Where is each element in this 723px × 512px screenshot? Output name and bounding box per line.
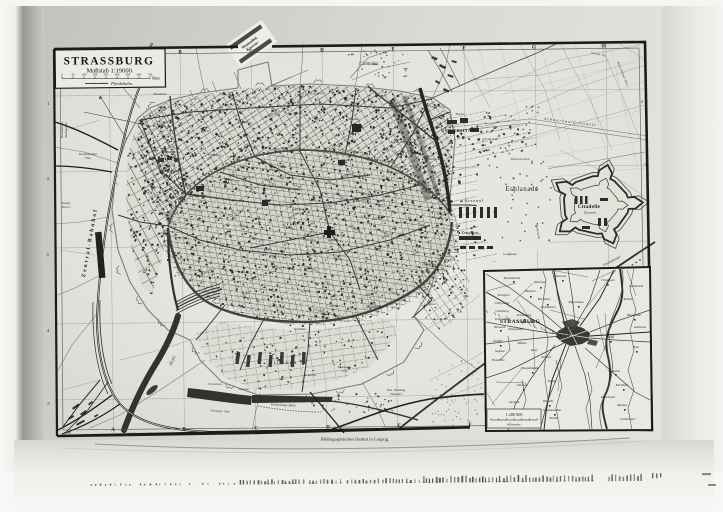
svg-text:Hönheim: Hönheim	[524, 289, 537, 293]
svg-text:Beckerg.: Beckerg.	[262, 106, 271, 109]
svg-text:Pfalzg.: Pfalzg.	[323, 203, 333, 208]
svg-text:Auenheim: Auenheim	[633, 325, 647, 329]
svg-text:Bischheim: Bischheim	[538, 297, 551, 301]
svg-text:Chorin Stift: Chorin Stift	[482, 137, 497, 141]
svg-text:Esplanade: Esplanade	[505, 186, 538, 193]
svg-text:Thor: Thor	[85, 156, 92, 160]
svg-text:Citadelle: Citadelle	[578, 204, 601, 210]
svg-text:C: C	[249, 50, 253, 55]
svg-text:Ostwald: Ostwald	[517, 383, 528, 387]
svg-text:Eckbolsheim: Eckbolsheim	[494, 318, 509, 321]
svg-text:Nikolausg.: Nikolausg.	[303, 237, 317, 241]
svg-text:Leughaus: Leughaus	[503, 252, 517, 256]
svg-text:Kaiser Wilh.-Str.: Kaiser Wilh.-Str.	[391, 140, 414, 144]
svg-text:Reichstett: Reichstett	[533, 280, 546, 284]
svg-text:Arsenal: Arsenal	[464, 198, 483, 203]
svg-text:2: 2	[641, 99, 643, 104]
svg-text:v.d.Tann: v.d.Tann	[509, 400, 520, 404]
svg-text:Pferdebahn.: Pferdebahn.	[110, 81, 133, 86]
svg-text:Werder: Werder	[549, 416, 559, 420]
svg-text:Buchsweiler: Buchsweiler	[64, 123, 68, 138]
svg-text:Wörterhaus: Wörterhaus	[208, 382, 223, 386]
svg-text:Neudorf: Neudorf	[540, 355, 552, 359]
svg-text:Metzgerthor: Metzgerthor	[366, 305, 385, 309]
svg-text:1:200 000: 1:200 000	[506, 412, 523, 417]
svg-text:Grüneberg: Grüneberg	[495, 309, 509, 313]
svg-text:Kaserne: Kaserne	[239, 387, 249, 391]
svg-text:Bibliographisches Institut in: Bibliographisches Institut in Leipzig.	[321, 437, 389, 442]
svg-text:Inst.: Inst.	[342, 369, 348, 373]
svg-text:1: 1	[47, 101, 49, 106]
svg-text:600: 600	[137, 73, 142, 77]
svg-text:G: G	[532, 46, 536, 51]
svg-text:50: 50	[72, 73, 76, 77]
svg-text:Marlen: Marlen	[617, 403, 627, 407]
svg-text:Bourse: Bourse	[455, 112, 465, 116]
svg-text:Ruprechtsau: Ruprechtsau	[567, 300, 584, 304]
svg-text:Sundheim: Sundheim	[608, 369, 621, 373]
svg-text:STRASSBURG: STRASSBURG	[64, 56, 155, 68]
svg-text:Krongrbh.: Krongrbh.	[497, 293, 511, 297]
svg-text:Contades: Contades	[360, 62, 379, 67]
svg-text:Saghsen: Saghsen	[495, 349, 505, 353]
svg-text:Academie: Academie	[303, 373, 317, 377]
svg-text:Mühlem: Mühlem	[516, 342, 526, 345]
svg-text:Bismarck: Bismarck	[494, 325, 506, 329]
svg-text:D: D	[326, 426, 330, 431]
svg-text:Kräfftel: Kräfftel	[492, 339, 503, 343]
svg-text:Lingolsheim: Lingolsheim	[521, 366, 539, 370]
svg-text:H: H	[602, 45, 606, 50]
svg-text:Meter: Meter	[152, 77, 161, 81]
svg-text:Kehl: Kehl	[606, 334, 615, 339]
svg-text:Goldscheuer: Goldscheuer	[620, 417, 636, 421]
svg-text:Blumenthal: Blumenthal	[627, 313, 641, 317]
svg-text:Altorf: Altorf	[530, 349, 539, 352]
svg-text:Neudorf: Neudorf	[390, 392, 402, 396]
svg-text:UNIVERSITÄT: UNIVERSITÄT	[441, 128, 475, 133]
svg-text:Schiltigheimer Th.: Schiltigheimer Th.	[127, 432, 153, 436]
svg-text:300: 300	[104, 73, 109, 77]
svg-text:Kilstett: Kilstett	[623, 297, 633, 301]
svg-text:C: C	[254, 427, 258, 432]
svg-text:Geblhaus: Geblhaus	[424, 302, 436, 306]
svg-text:Zentral-Bhf.: Zentral-Bhf.	[521, 321, 535, 324]
svg-text:F: F	[462, 47, 465, 52]
svg-text:Kaiser-: Kaiser-	[350, 117, 360, 121]
svg-text:Franzosen: Franzosen	[600, 278, 615, 282]
svg-text:Neuhof: Neuhof	[547, 379, 558, 383]
svg-text:Mittelebretben: Mittelebretben	[511, 157, 530, 161]
svg-text:Königshofen: Königshofen	[507, 327, 524, 331]
svg-text:400: 400	[115, 73, 120, 77]
svg-text:Zeughaus: Zeughaus	[461, 230, 478, 235]
svg-text:700: 700	[148, 73, 153, 77]
svg-text:(Kaserne): (Kaserne)	[584, 211, 596, 215]
svg-text:Schartweier: Schartweier	[601, 395, 616, 399]
svg-text:100: 100	[82, 73, 87, 77]
svg-text:Gambsheim: Gambsheim	[629, 284, 644, 288]
svg-text:Kirchbach: Kirchbach	[615, 383, 629, 387]
svg-text:Spitalthor: Spitalthor	[294, 327, 308, 331]
svg-text:Rose: Rose	[632, 345, 640, 349]
svg-text:Grafenstaden: Grafenstaden	[543, 408, 561, 412]
svg-text:Markthalle: Markthalle	[188, 193, 207, 198]
svg-text:500: 500	[126, 73, 131, 77]
svg-text:D: D	[320, 49, 324, 54]
svg-text:Kronenburg: Kronenburg	[516, 313, 532, 317]
svg-text:Gas-Anstalt: Gas-Anstalt	[160, 168, 182, 173]
svg-text:F: F	[468, 423, 471, 428]
svg-text:Kliniken: Kliniken	[269, 360, 298, 366]
svg-text:Sterng.: Sterng.	[329, 303, 339, 308]
svg-text:Orbey-Bahn: Orbey-Bahn	[495, 301, 510, 305]
svg-text:Sackg.: Sackg.	[437, 212, 445, 216]
svg-text:Mundolsheim: Mundolsheim	[503, 276, 521, 280]
svg-text:Jllkirch: Jllkirch	[543, 399, 553, 403]
svg-text:Schiltigheim: Schiltigheim	[541, 305, 557, 309]
svg-text:Strassbau: Strassbau	[154, 92, 167, 96]
svg-text:200: 200	[93, 73, 98, 77]
svg-text:Wanzenau: Wanzenau	[554, 274, 567, 278]
svg-text:Etlotzheim: Etlotzheim	[491, 358, 506, 362]
svg-text:2: 2	[47, 176, 49, 181]
svg-text:53 49: 53 49	[64, 431, 71, 435]
svg-text:A: A	[111, 428, 115, 433]
svg-text:Kilometer: Kilometer	[506, 423, 521, 427]
svg-text:Thor I.: Thor I.	[62, 205, 71, 209]
